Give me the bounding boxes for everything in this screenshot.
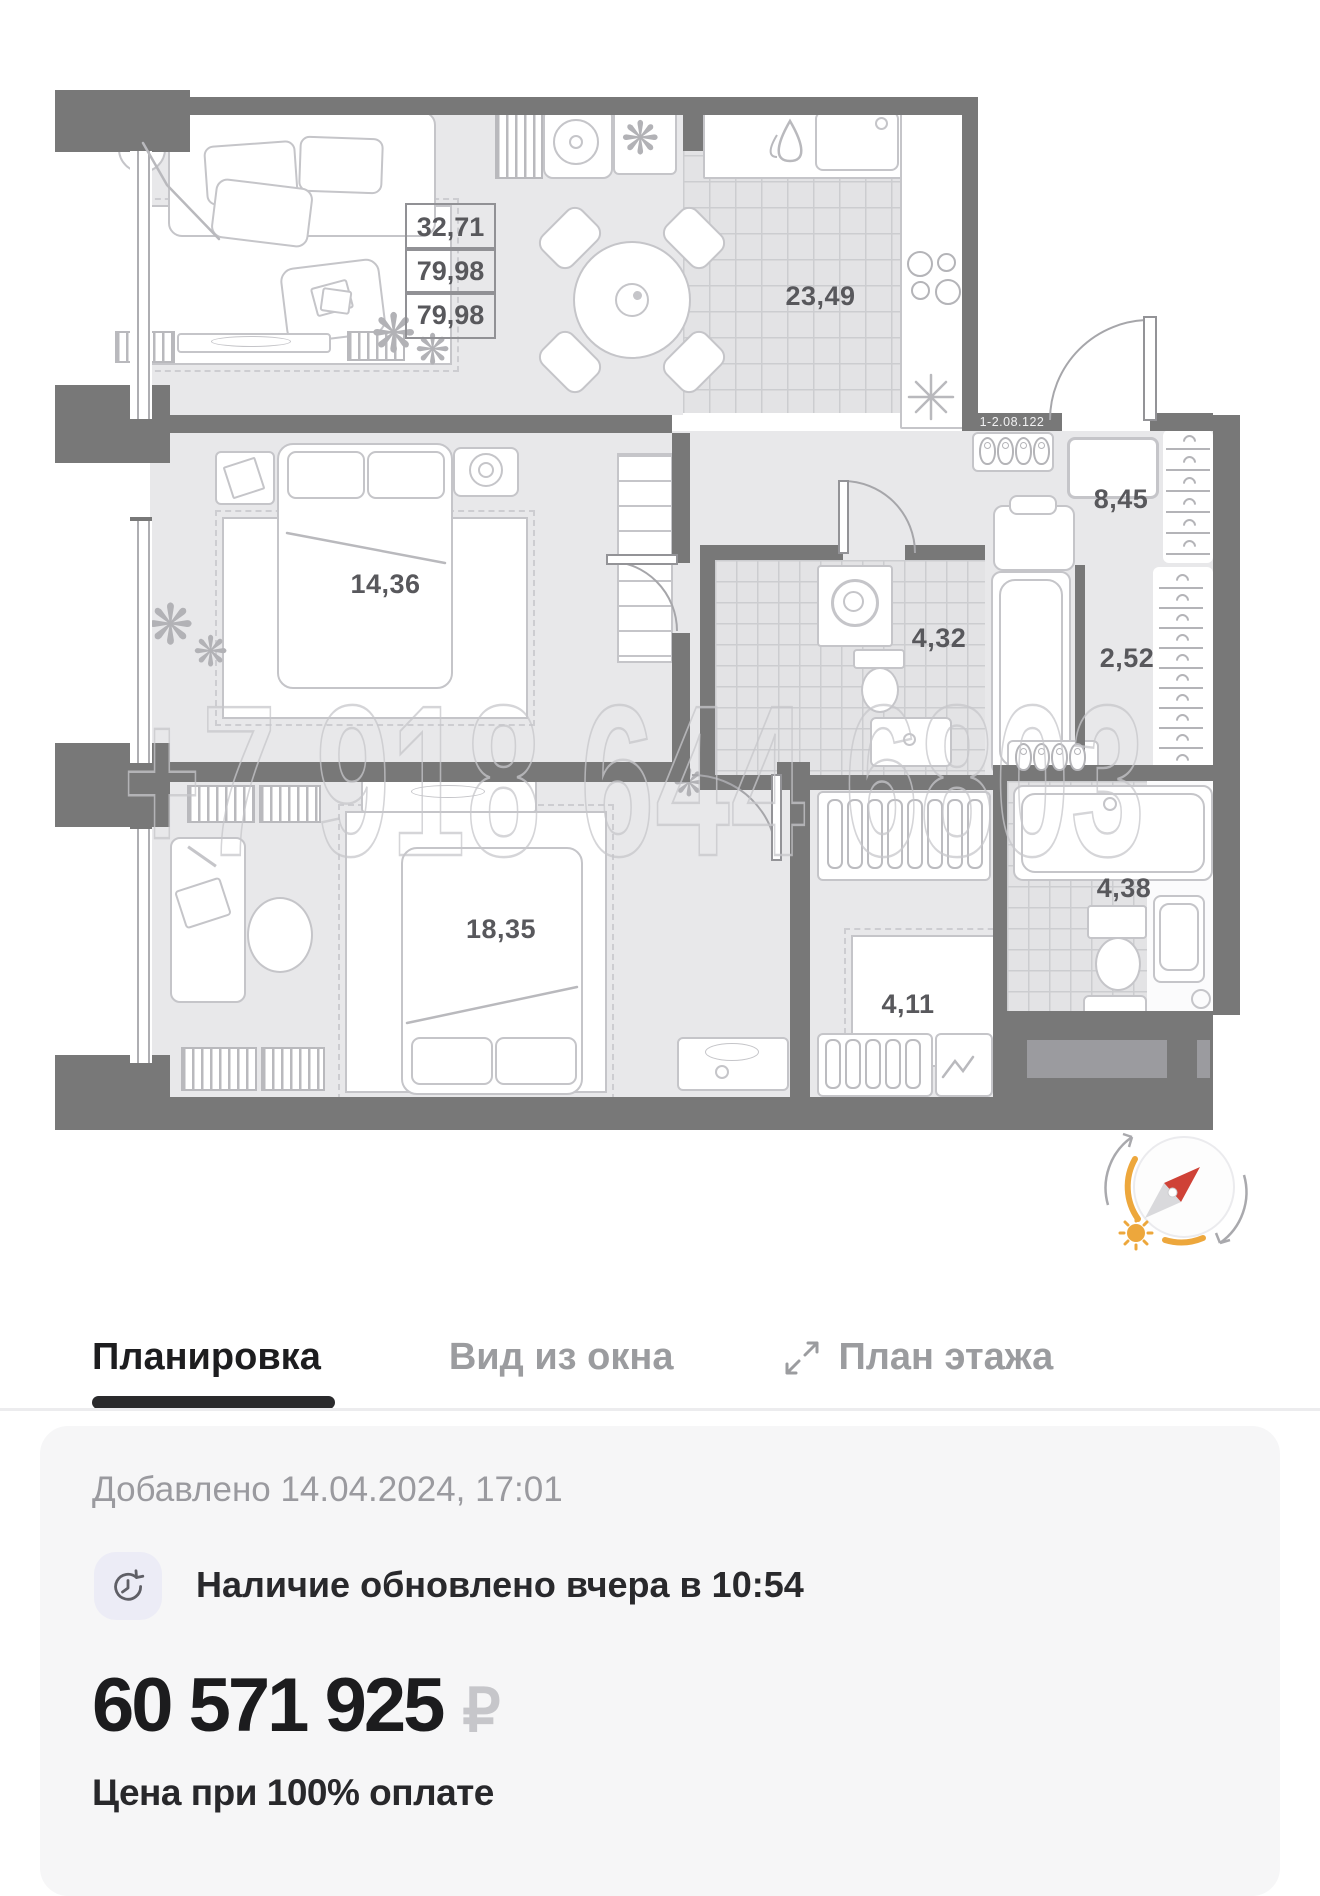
expand-arrows-icon [782,1338,822,1378]
listing-page: { "floorplan": { "watermark_phone": "+7 … [0,0,1320,1856]
hanger-icon [825,1039,841,1089]
area-label: 79,98 [417,256,485,287]
sink2-basin [1159,903,1199,971]
room-area-label: 8,45 [1085,485,1157,513]
room-area-label: 23,49 [773,281,868,311]
hanger-icon [1159,673,1203,691]
shoe-icon [997,437,1014,465]
sofa-cushion [298,136,384,195]
wall-segment [672,433,690,563]
washer-drum [843,591,864,612]
hanger-icon [1159,573,1203,591]
desk-chair [247,897,313,973]
room-area-label: 14,36 [343,570,428,598]
compass-icon [1092,1125,1272,1275]
stove-burner [935,279,961,305]
pillow [495,1037,577,1085]
hanger-icon [1166,455,1210,473]
record-dot [569,135,583,149]
radiator [181,1047,257,1091]
stove-burner [907,251,933,277]
area-label: 79,98 [417,300,485,331]
shoe-rack [935,1033,993,1097]
hanger-icon [1159,733,1203,751]
price-value: 60 571 925 [92,1662,442,1749]
tab-window-view[interactable]: Вид из окна [449,1336,674,1379]
stove-burner [911,281,930,300]
wall-segment [1213,415,1240,1015]
room-area-label: 4,32 [903,625,975,651]
price-row: 60 571 925 ₽ [92,1662,501,1749]
room-area-label: 2,52 [1095,645,1159,671]
plan-tabs: Планировка Вид из окна План этажа [92,1336,1053,1379]
wall-segment [905,545,985,560]
mirror [705,1043,759,1061]
wall-segment [683,103,703,151]
plate [211,336,291,347]
shoe-icon [1033,437,1050,465]
added-date: Добавлено 14.04.2024, 17:01 [92,1470,563,1510]
teapot-lid [633,291,642,300]
wall-segment [150,415,672,433]
radiator [261,1047,325,1091]
tabs-divider [0,1408,1320,1411]
teapot [615,283,649,317]
room-area-label: 4,38 [1093,875,1155,901]
pillow [287,451,365,499]
room-area-label: 4,11 [877,991,939,1017]
hanger-icon [1159,693,1203,711]
tab-layout[interactable]: Планировка [92,1336,321,1379]
hanger-icon [865,1039,881,1089]
shelf-unit [617,453,673,663]
hanger-icon [1166,497,1210,515]
availability-icon-box [94,1552,162,1620]
towel-ring [1191,989,1211,1009]
hanger-icon [1159,633,1203,651]
plant-icon [147,597,194,653]
area-label: 32,71 [417,212,485,243]
wall-segment [150,1097,995,1130]
wall-segment [700,545,843,560]
speaker-cone [478,462,494,478]
bench-back [1009,495,1057,515]
area-box: 32,71 [405,203,496,251]
hanger-icon [845,1039,861,1089]
pillow [367,451,445,499]
hanger-icon [905,1039,921,1089]
area-box: 79,98 [405,247,496,295]
floorplan-viewer[interactable]: 32,71 79,98 79,98 23,49 8,45 1-2.08.122 [55,85,1265,1130]
sink-drain [875,117,888,130]
hanger-icon [885,1039,901,1089]
wall-segment [170,97,978,115]
vinyl-rack [495,107,543,179]
plant-icon [621,115,660,161]
wall-segment [962,103,978,415]
hanger-icon [1166,476,1210,494]
window [130,147,152,423]
tab-floor-plan[interactable]: План этажа [782,1336,1053,1379]
toilet2-bowl [1095,937,1141,991]
wall-segment [1150,413,1213,431]
pillow [411,1037,493,1085]
duct [1027,1040,1167,1078]
watermark-phone: +7 918 644 6803 [123,673,1146,888]
shoe-icon [979,437,996,465]
clock-refresh-icon [108,1566,148,1606]
hanger-icon [1159,713,1203,731]
cosmetics [715,1065,729,1079]
availability-status: Наличие обновлено вчера в 10:54 [196,1564,804,1606]
hanger-icon [1159,653,1203,671]
currency-symbol: ₽ [462,1676,500,1746]
price-note: Цена при 100% оплате [92,1772,494,1814]
toilet2-tank [1087,905,1147,939]
hanger-icon [1159,613,1203,631]
stove-burner [937,253,956,272]
hanger-icon [1159,593,1203,611]
apartment-code-label: 1-2.08.122 [962,414,1062,430]
room-area-label: 18,35 [457,915,545,943]
price-card: Добавлено 14.04.2024, 17:01 Наличие обно… [40,1426,1280,1896]
duct [1197,1040,1210,1078]
area-box: 79,98 [405,291,496,339]
book [319,287,352,315]
ottoman [210,177,315,248]
shoe-icon [1015,437,1032,465]
hanger-icon [1166,518,1210,536]
hanger-icon [1166,539,1210,557]
hanger-icon [1166,434,1210,452]
